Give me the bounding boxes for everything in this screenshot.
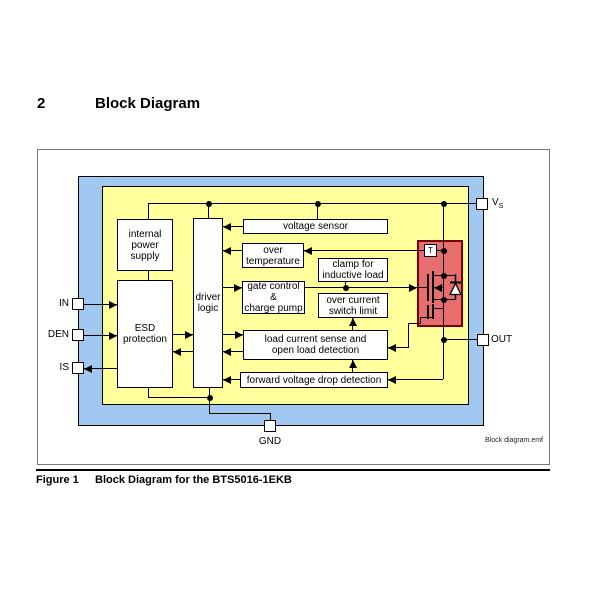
- pin-gnd: [264, 420, 276, 432]
- figure-watermark: Block diagram.emf: [403, 437, 543, 444]
- section-title: Block Diagram: [95, 95, 200, 112]
- junction-dot: [343, 285, 349, 291]
- arrowhead-icon: [234, 284, 242, 292]
- arrowhead-icon: [84, 365, 92, 373]
- pin-is: [72, 362, 84, 374]
- junction-dot: [441, 337, 447, 343]
- arrowhead-icon: [185, 331, 193, 339]
- wire: [304, 250, 425, 251]
- pin-vs: [476, 198, 488, 210]
- document-page: 2 Block Diagram internal power supply ES…: [0, 0, 600, 600]
- pin-label-gnd: GND: [250, 436, 290, 447]
- wire: [270, 413, 271, 420]
- wire: [432, 304, 434, 319]
- wire: [305, 287, 417, 288]
- junction-dot: [441, 297, 447, 303]
- block-gate-control-charge-pump: gate control & charge pump: [242, 281, 305, 314]
- caption-label: Figure 1: [36, 474, 79, 486]
- wire: [148, 271, 149, 280]
- caption-title: Block Diagram for the BTS5016-1EKB: [95, 474, 292, 486]
- wire: [443, 203, 444, 379]
- temp-sensor-icon: T: [424, 244, 437, 257]
- caption-rule: [36, 469, 550, 471]
- wire: [427, 305, 429, 319]
- wire: [148, 397, 210, 398]
- arrowhead-icon: [349, 360, 357, 368]
- block-esd-protection: ESD protection: [117, 280, 173, 388]
- pin-label-is: IS: [40, 362, 69, 373]
- vs-letter: V: [492, 197, 499, 208]
- arrowhead-icon: [388, 344, 396, 352]
- section-number: 2: [37, 95, 45, 112]
- arrowhead-icon: [223, 223, 231, 231]
- junction-dot: [206, 201, 212, 207]
- block-voltage-sensor: voltage sensor: [243, 219, 388, 234]
- block-driver-logic: driver logic: [193, 218, 223, 388]
- wire: [148, 388, 149, 397]
- block-internal-power-supply: internal power supply: [117, 219, 173, 271]
- arrowhead-icon: [109, 332, 117, 340]
- arrowhead-icon: [409, 284, 417, 292]
- pin-label-den: DEN: [40, 329, 69, 340]
- junction-dot: [441, 248, 447, 254]
- wire: [434, 308, 443, 309]
- arrowhead-icon: [223, 247, 231, 255]
- junction-dot: [207, 395, 213, 401]
- wire: [148, 203, 476, 204]
- wire: [408, 323, 421, 324]
- junction-dot: [441, 273, 447, 279]
- arrowhead-icon: [223, 348, 231, 356]
- block-over-current-switch-limit: over current switch limit: [318, 293, 388, 318]
- arrowhead-icon: [388, 376, 396, 384]
- pin-label-vs: VS: [492, 197, 503, 210]
- wire: [209, 413, 271, 414]
- wire: [427, 274, 429, 301]
- arrowhead-icon: [173, 348, 181, 356]
- pin-label-in: IN: [40, 298, 69, 309]
- block-load-current-sense: load current sense and open load detecti…: [243, 330, 388, 360]
- block-clamp-inductive-load: clamp for inductive load: [318, 258, 388, 282]
- arrowhead-icon: [109, 301, 117, 309]
- junction-dot: [441, 201, 447, 207]
- vs-subscript: S: [499, 203, 504, 210]
- pin-in: [72, 298, 84, 310]
- arrowhead-icon: [349, 318, 357, 326]
- body-diode-icon: [448, 274, 464, 300]
- arrowhead-icon: [304, 247, 312, 255]
- arrowhead-icon: [223, 376, 231, 384]
- wire: [443, 339, 477, 340]
- wire: [408, 323, 409, 348]
- block-over-temperature: over temperature: [242, 243, 304, 268]
- wire: [388, 379, 443, 380]
- pin-out: [477, 334, 489, 346]
- arrowhead-icon: [434, 284, 442, 292]
- junction-dot: [315, 201, 321, 207]
- block-forward-voltage-drop: forward voltage drop detection: [240, 372, 388, 388]
- pin-den: [72, 329, 84, 341]
- arrowhead-icon: [235, 331, 243, 339]
- pin-label-out: OUT: [491, 334, 512, 345]
- wire: [148, 203, 149, 219]
